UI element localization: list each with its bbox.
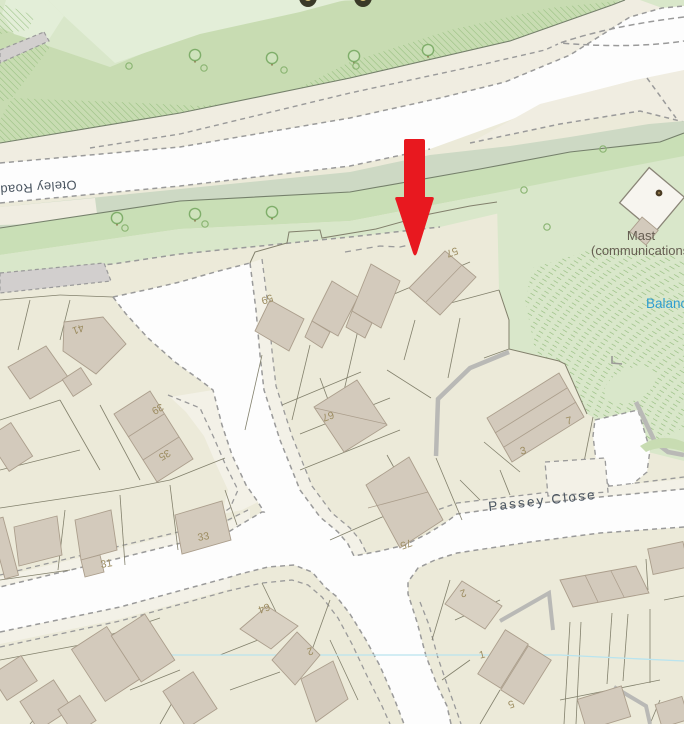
svg-text:(communications: (communications [591,243,684,258]
svg-text:33: 33 [197,530,211,544]
svg-text:Mast: Mast [627,228,656,243]
svg-text:Balancin: Balancin [646,296,684,311]
svg-text:31: 31 [100,557,114,571]
